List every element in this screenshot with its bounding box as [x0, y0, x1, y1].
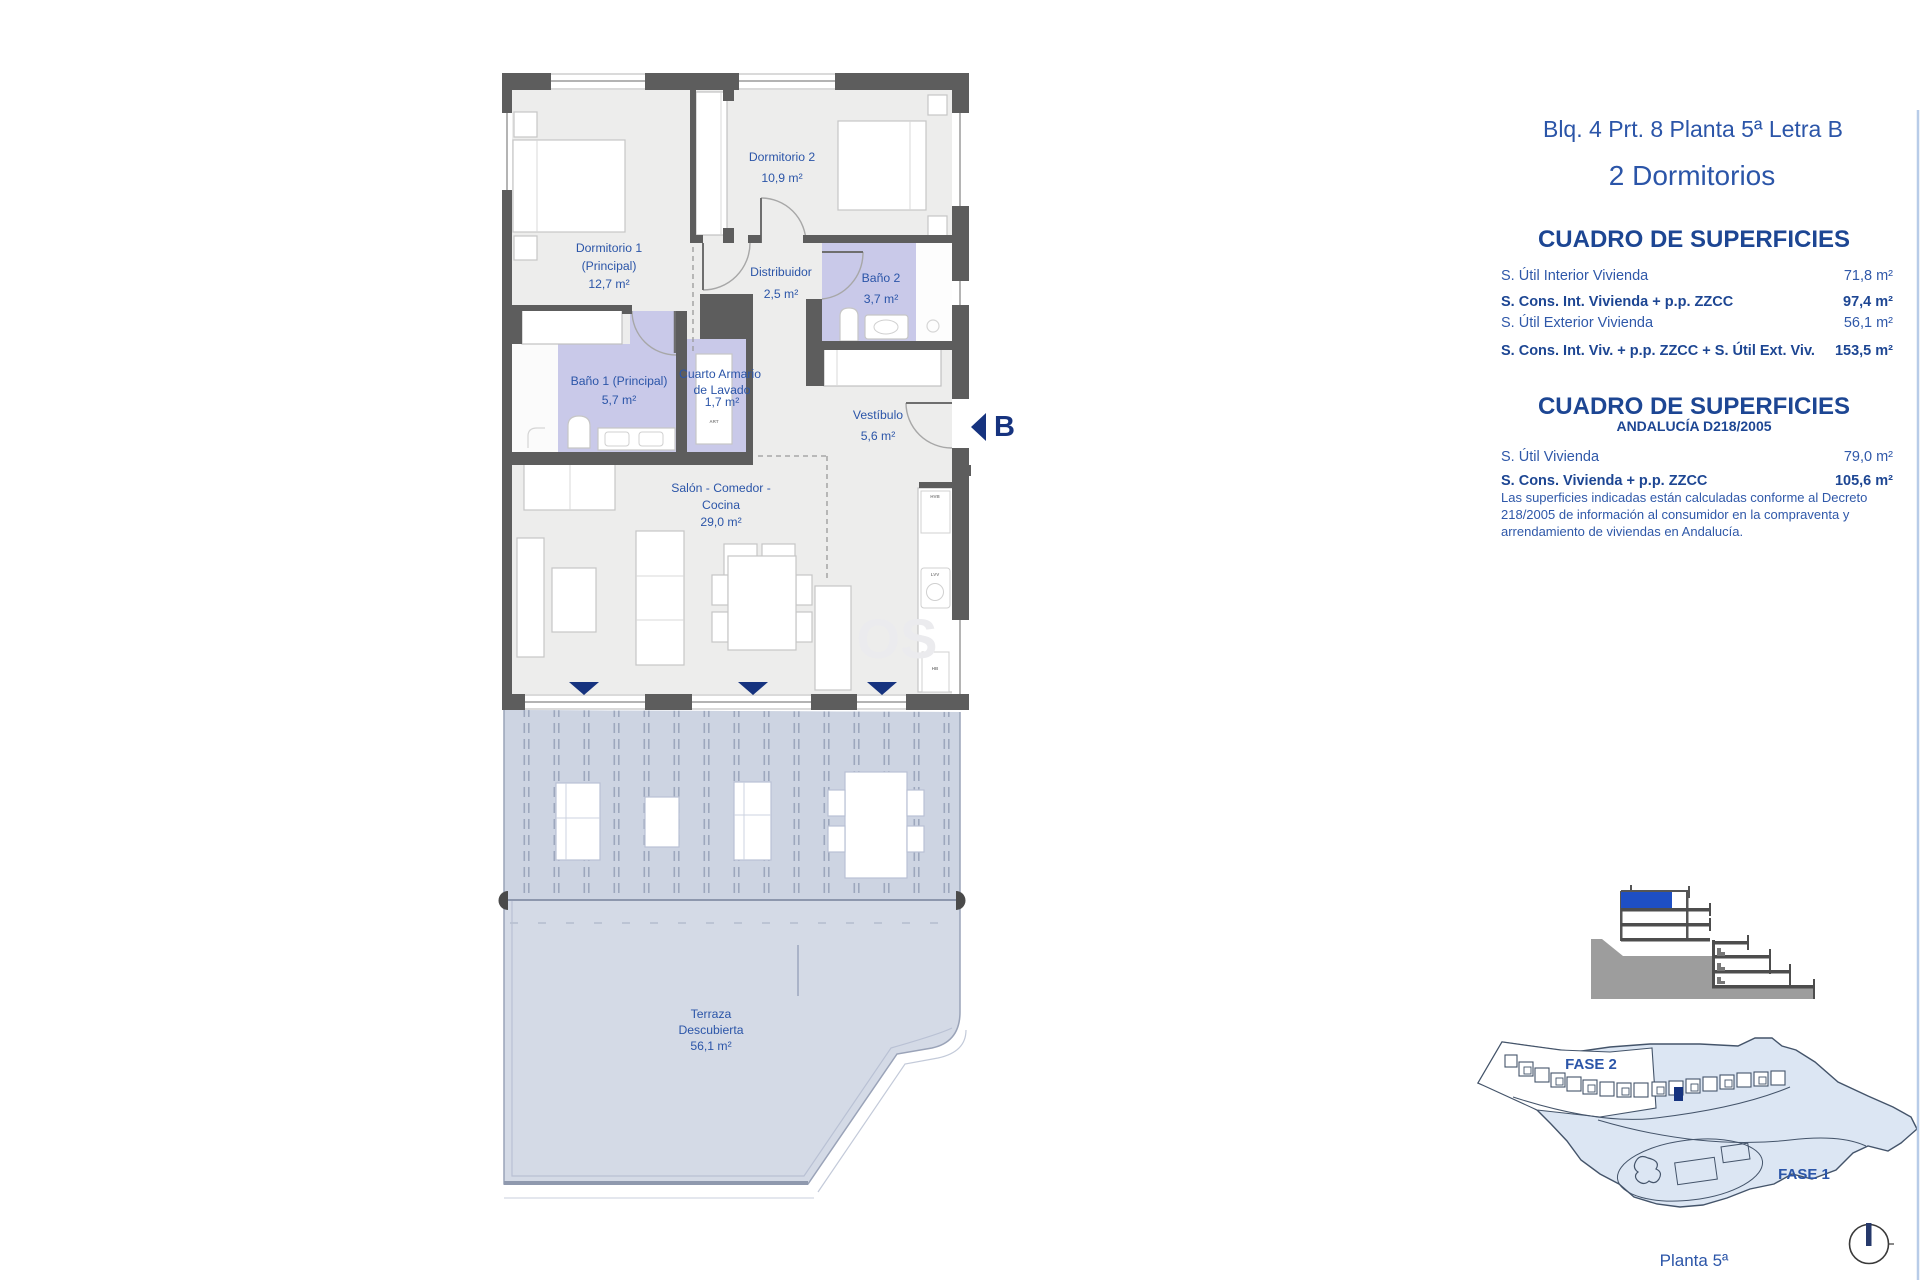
svg-text:218/2005 de información al con: 218/2005 de información al consumidor en… [1501, 507, 1850, 522]
svg-text:FASE 2: FASE 2 [1565, 1056, 1617, 1073]
svg-text:S. Cons. Int. Viv. + p.p. ZZCC: S. Cons. Int. Viv. + p.p. ZZCC + S. Útil… [1501, 341, 1815, 359]
svg-text:S. Cons. Int. Vivienda + p.p.: S. Cons. Int. Vivienda + p.p. ZZCC [1501, 294, 1734, 310]
svg-text:Blq. 4 Prt. 8 Planta 5ª Letra: Blq. 4 Prt. 8 Planta 5ª Letra B [1543, 116, 1843, 142]
svg-text:(Principal): (Principal) [582, 259, 637, 273]
svg-text:ART: ART [709, 419, 718, 424]
svg-text:Dormitorio 2: Dormitorio 2 [749, 150, 816, 164]
svg-text:Terraza: Terraza [691, 1007, 732, 1021]
svg-text:56,1 m²: 56,1 m² [690, 1039, 731, 1053]
svg-text:12,7 m²: 12,7 m² [588, 277, 629, 291]
svg-text:OS: OS [857, 607, 938, 670]
svg-text:5,7 m²: 5,7 m² [602, 393, 637, 407]
svg-text:Salón - Comedor -: Salón - Comedor - [671, 481, 771, 495]
svg-text:Descubierta: Descubierta [678, 1023, 743, 1037]
svg-text:Cocina: Cocina [702, 498, 740, 512]
svg-text:79,0 m²: 79,0 m² [1844, 449, 1893, 465]
svg-text:Dormitorio 1: Dormitorio 1 [576, 241, 643, 255]
svg-text:Baño 2: Baño 2 [862, 271, 901, 285]
svg-text:153,5 m²: 153,5 m² [1835, 343, 1893, 359]
svg-text:2 Dormitorios: 2 Dormitorios [1609, 160, 1775, 191]
svg-text:S. Útil Interior Vivienda: S. Útil Interior Vivienda [1501, 267, 1649, 284]
svg-text:Las superficies indicadas está: Las superficies indicadas están calculad… [1501, 490, 1867, 505]
svg-text:Distribuidor: Distribuidor [750, 265, 812, 279]
svg-text:105,6 m²: 105,6 m² [1835, 473, 1893, 489]
svg-text:97,4 m²: 97,4 m² [1843, 294, 1893, 310]
svg-text:LVV: LVV [931, 572, 939, 577]
svg-text:1,7 m²: 1,7 m² [705, 395, 740, 409]
svg-text:Baño 1 (Principal): Baño 1 (Principal) [571, 374, 668, 388]
svg-text:HVB: HVB [930, 494, 940, 499]
svg-text:S. Cons. Vivienda + p.p. ZZCC: S. Cons. Vivienda + p.p. ZZCC [1501, 473, 1708, 489]
svg-text:56,1 m²: 56,1 m² [1844, 315, 1893, 331]
svg-text:5,6 m²: 5,6 m² [861, 429, 896, 443]
svg-text:ANDALUCÍA D218/2005: ANDALUCÍA D218/2005 [1616, 418, 1771, 434]
svg-text:Planta 5ª: Planta 5ª [1660, 1251, 1729, 1270]
svg-text:3,7 m²: 3,7 m² [864, 292, 899, 306]
svg-text:Cuarto Armario: Cuarto Armario [679, 367, 761, 381]
svg-text:71,8 m²: 71,8 m² [1844, 268, 1893, 284]
svg-text:29,0 m²: 29,0 m² [700, 515, 741, 529]
svg-text:10,9 m²: 10,9 m² [761, 171, 802, 185]
svg-text:2,5 m²: 2,5 m² [764, 287, 799, 301]
svg-text:B: B [994, 411, 1015, 443]
svg-text:S. Útil Exterior Vivienda: S. Útil Exterior Vivienda [1501, 314, 1654, 331]
svg-text:CUADRO DE SUPERFICIES: CUADRO DE SUPERFICIES [1538, 393, 1850, 420]
svg-text:Vestíbulo: Vestíbulo [853, 408, 903, 422]
svg-text:FASE 1: FASE 1 [1778, 1166, 1830, 1183]
svg-text:S. Útil Vivienda: S. Útil Vivienda [1501, 448, 1600, 465]
svg-text:arrendamiento de viviendas en: arrendamiento de viviendas en Andalucía. [1501, 524, 1743, 539]
svg-text:CUADRO DE SUPERFICIES: CUADRO DE SUPERFICIES [1538, 226, 1850, 253]
